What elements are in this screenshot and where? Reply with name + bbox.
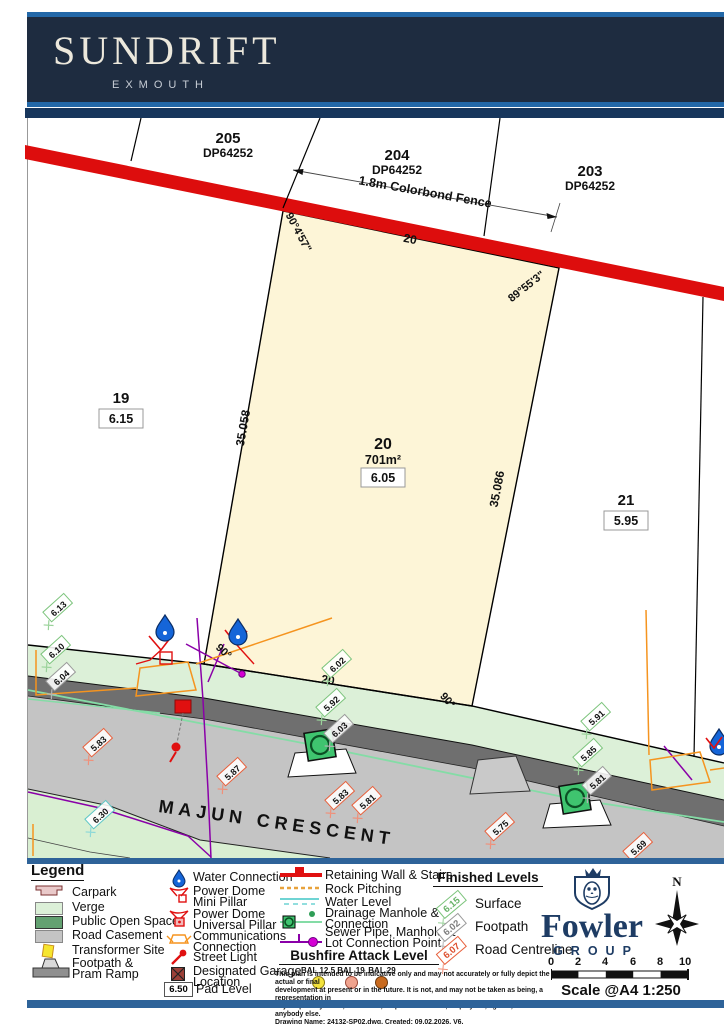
- carpark-swatch: [35, 884, 69, 898]
- scale-tick: 4: [599, 956, 611, 968]
- sewer-connection-point: [239, 671, 245, 677]
- fowler-owl-logo: [568, 866, 616, 914]
- estate-title: SUNDRIFT: [53, 27, 281, 74]
- disclaimer-line: This plan is intended to be indicative o…: [275, 971, 565, 987]
- street-light-icon: [169, 949, 189, 967]
- footpath-level-label: Footpath: [475, 921, 528, 932]
- legend-top-bar: [27, 858, 724, 864]
- retaining-wall-stairs-icon: [279, 866, 323, 880]
- fence-label: 1.8m Colorbond Fence: [358, 173, 493, 210]
- lot20-number: 20: [374, 436, 392, 453]
- lot203-number: 203: [577, 163, 602, 180]
- lot20-area: 701m²: [365, 453, 401, 467]
- water-level-icon: [279, 896, 323, 906]
- legend-utility-label: Power Dome Universal Pillar: [193, 909, 283, 931]
- lot19-pad-level: 6.15: [99, 409, 143, 428]
- lot19-number: 19: [113, 390, 130, 407]
- legend-area-label: Public Open Space: [72, 916, 179, 927]
- lot204-plan: DP64252: [372, 163, 422, 177]
- estate-subtitle: EXMOUTH: [53, 79, 268, 91]
- lot204-number: 204: [384, 147, 410, 164]
- fowler-brand-name: Fowler: [522, 908, 662, 946]
- power-dome-mini-pillar-icon: [168, 886, 190, 904]
- svg-text:N: N: [672, 874, 682, 889]
- legend-area-label: Verge: [72, 902, 105, 913]
- legend-utility-label: Power Dome Mini Pillar: [193, 886, 273, 908]
- map-top-border: [25, 108, 724, 118]
- legend-area-label: Transformer Site: [72, 945, 165, 956]
- svg-text:6.05: 6.05: [371, 471, 395, 485]
- road-casement-swatch: [35, 930, 63, 943]
- scale-tick: 8: [654, 956, 666, 968]
- lot203-plan: DP64252: [565, 179, 615, 193]
- drainage-manhole-icon: [279, 908, 323, 930]
- legend-area-label: Carpark: [72, 887, 116, 898]
- header-banner: SUNDRIFT EXMOUTH: [27, 12, 724, 107]
- lot21-pad-level: 5.95: [604, 511, 648, 530]
- svg-text:5.95: 5.95: [614, 514, 638, 528]
- pad-level-sample: 6.50: [164, 982, 193, 997]
- lot21-number: 21: [618, 492, 635, 509]
- transformer-box: [175, 700, 191, 713]
- scale-tick: 10: [679, 956, 691, 968]
- footpath-pram-ramp-icon: [31, 955, 71, 980]
- site-plan-canvas: 205 DP64252 204 DP64252 203 DP64252 19 6…: [0, 118, 724, 858]
- svg-text:6.15: 6.15: [109, 412, 133, 426]
- finished-levels-title: Finished Levels: [433, 870, 543, 887]
- scale-tick: 0: [545, 956, 557, 968]
- water-connection-icon: [170, 868, 188, 888]
- rock-pitching-icon: [279, 884, 323, 892]
- disclaimer-line: Drawing Name: 24132-SP02.dwg, Created: 0…: [275, 1019, 565, 1024]
- scale-tick: 6: [627, 956, 639, 968]
- scale-label: Scale @A4 1:250: [551, 982, 691, 999]
- street-light-marker: [172, 743, 181, 752]
- power-dome-universal-pillar-icon: [168, 909, 190, 927]
- verge-swatch: [35, 902, 63, 915]
- page-bottom-bar: [27, 1000, 724, 1008]
- road-centreline-level-sample: 6.07: [435, 936, 469, 966]
- legend-panel: Legend Carpark Verge Public Open Space R…: [27, 858, 724, 1000]
- legend-title: Legend: [31, 862, 84, 881]
- designated-garage-location-icon: [170, 966, 187, 983]
- lot20-pad-level: 6.05: [361, 468, 405, 487]
- public-open-space-swatch: [35, 916, 63, 929]
- communications-connection-icon: [166, 931, 192, 947]
- site-plan-page: SUNDRIFT EXMOUTH: [0, 0, 724, 1024]
- legend-area-label: Footpath & Pram Ramp: [72, 958, 142, 980]
- lot205-number: 205: [215, 130, 240, 147]
- compass-rose: N: [648, 872, 706, 958]
- legend-area-label: Road Casement: [72, 930, 162, 941]
- level-marker: 6.13: [37, 593, 75, 630]
- disclaimer-text: This plan is intended to be indicative o…: [275, 971, 565, 1024]
- bushfire-title: Bushfire Attack Level: [279, 948, 439, 965]
- scale-bar: [551, 969, 691, 981]
- lot205-plan: DP64252: [203, 146, 253, 160]
- scale-tick: 2: [572, 956, 584, 968]
- surface-level-label: Surface: [475, 898, 522, 909]
